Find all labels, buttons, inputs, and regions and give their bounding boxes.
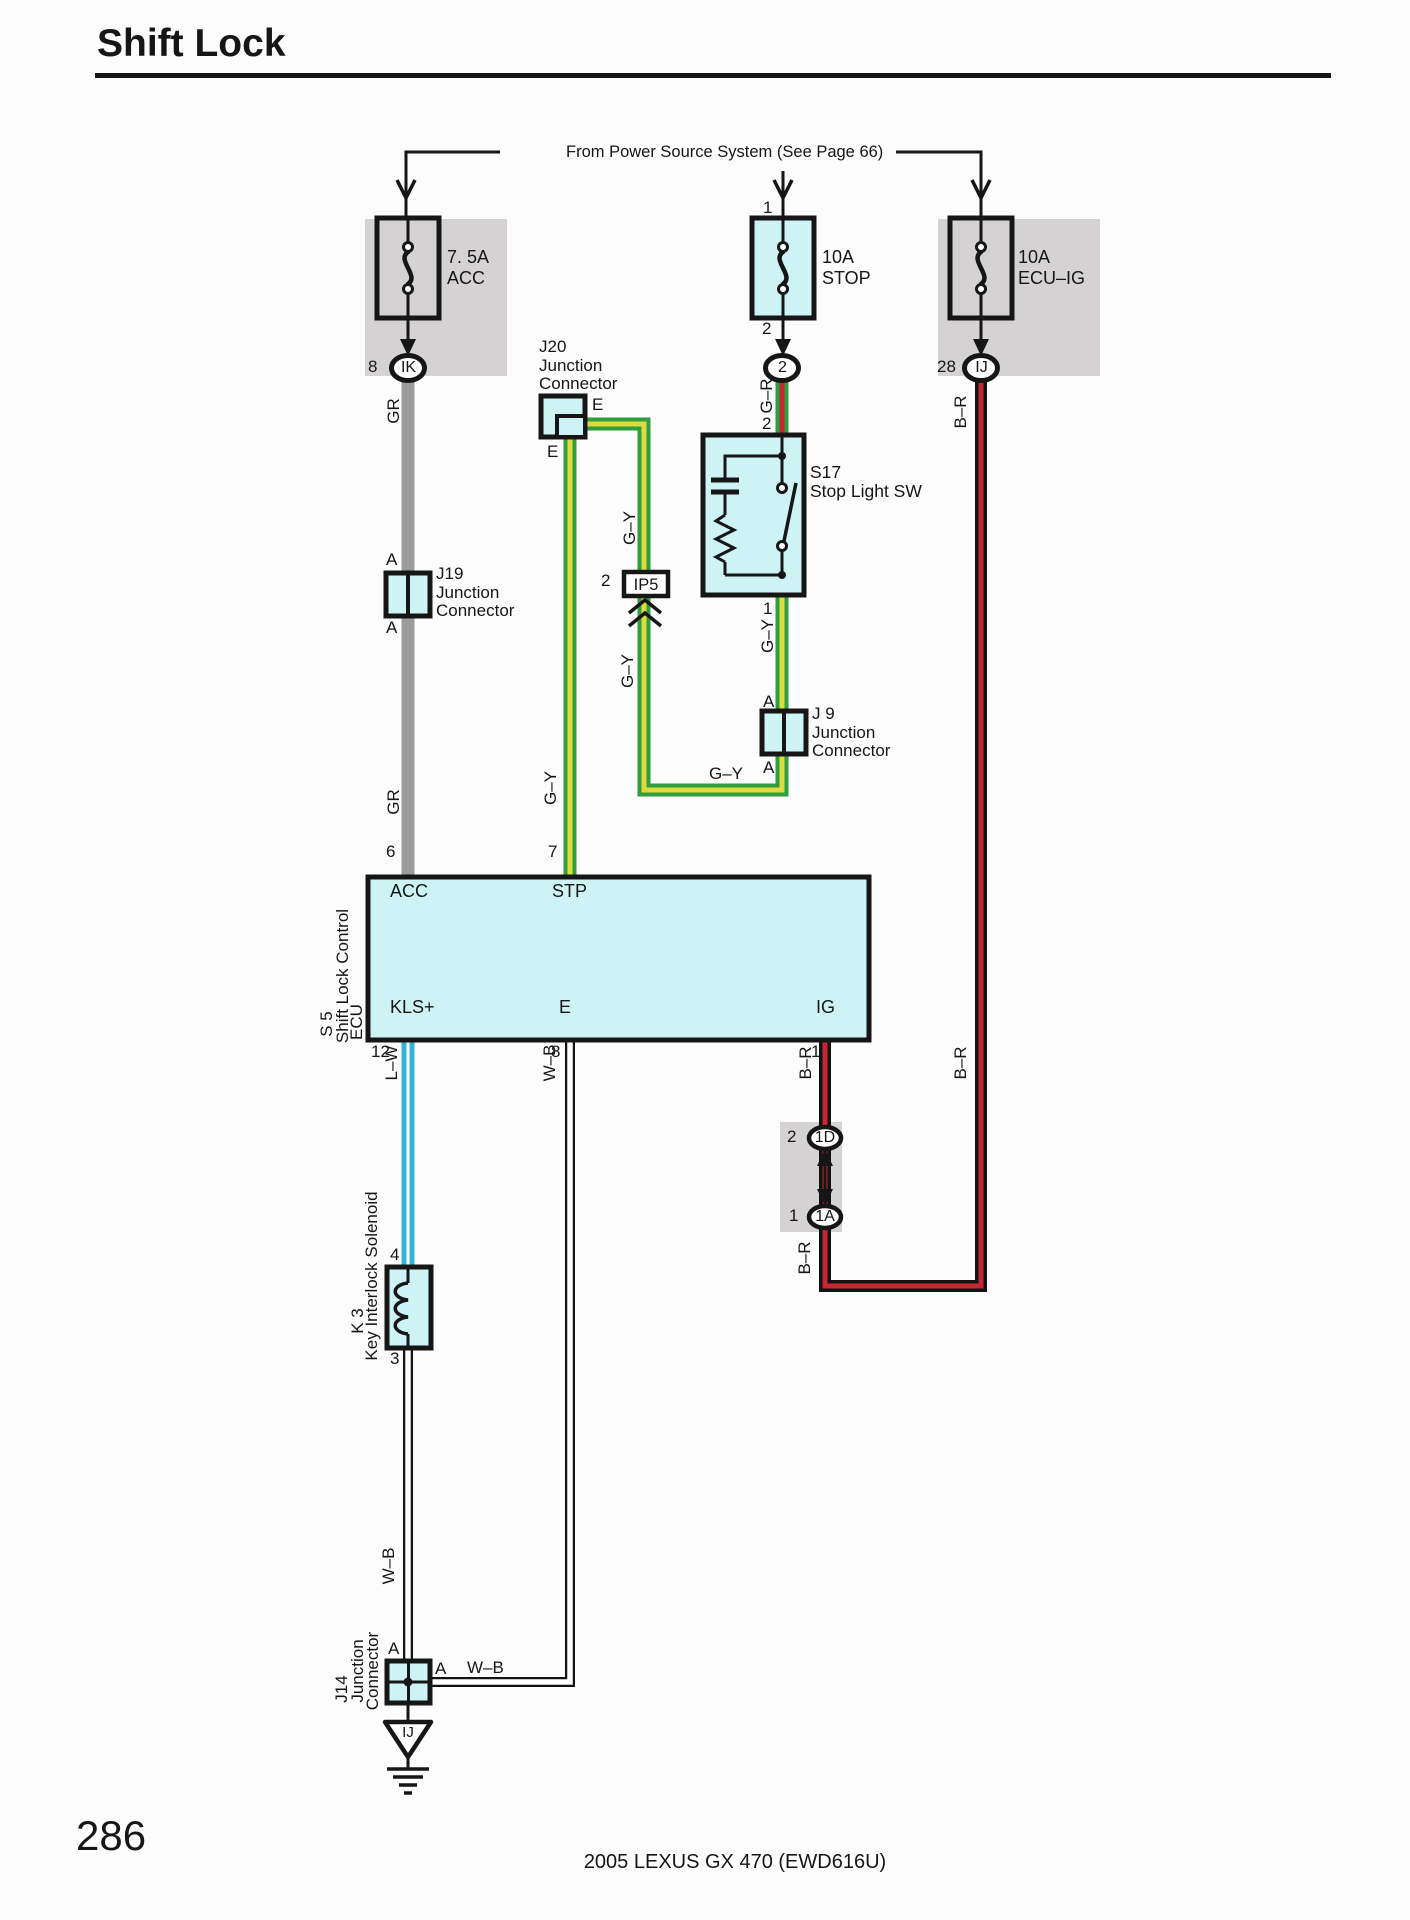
pin-letter: A	[763, 759, 774, 778]
ecu-pin-e: E	[559, 997, 571, 1018]
switch-contact-icon	[778, 542, 787, 551]
pin-number: 28	[937, 358, 956, 377]
wire-label-g-y: G–Y	[709, 765, 743, 784]
wire-b-r	[825, 379, 981, 1286]
fuse-name: ACC	[447, 268, 489, 289]
junction-id: J20	[539, 338, 617, 357]
ecu-pin-kls: KLS+	[390, 997, 435, 1018]
wire-w-b-e	[428, 1040, 570, 1682]
pin-number: 6	[386, 843, 395, 862]
j20-label: J20 Junction Connector	[539, 338, 617, 394]
connector-code: IP5	[624, 577, 668, 594]
wiring-diagram	[0, 0, 1410, 1920]
fuse-name: STOP	[822, 268, 871, 289]
fuse-rating: 7. 5A	[447, 247, 489, 268]
wire-label-w-b: W–B	[467, 1659, 504, 1678]
ground-symbol	[385, 1703, 431, 1793]
pin-letter: A	[763, 693, 774, 712]
fuse-rating: 10A	[822, 247, 871, 268]
fuse-stop-symbol	[752, 218, 814, 381]
fuse-ecuig-label: 10A ECU–IG	[1018, 247, 1085, 289]
pin-number: 7	[548, 843, 557, 862]
k3-key-interlock-solenoid	[387, 1267, 431, 1348]
fuse-name: ECU–IG	[1018, 268, 1085, 289]
pin-number: 4	[390, 1246, 399, 1265]
pin-number: 2	[762, 415, 771, 434]
ecu-pin-acc: ACC	[390, 881, 428, 902]
pin-letter: E	[592, 396, 603, 415]
component-id: S17	[810, 463, 922, 482]
j9-label: J 9 Junction Connector	[812, 705, 890, 761]
s5-shift-lock-ecu-box	[368, 877, 869, 1040]
j19-label: J19 Junction Connector	[436, 565, 514, 621]
pin-letter: A	[388, 1640, 399, 1659]
pin-letter: E	[547, 443, 558, 462]
page-number: 286	[76, 1812, 146, 1860]
pin-letter: A	[435, 1660, 446, 1679]
fuse-acc-label: 7. 5A ACC	[447, 247, 489, 289]
title-underline	[95, 73, 1331, 78]
fuse-rating: 10A	[1018, 247, 1085, 268]
pin-number: 2	[601, 572, 610, 591]
feed-line-acc	[406, 152, 500, 225]
pin-number: 2	[762, 320, 771, 339]
pin-number: 1	[763, 199, 772, 218]
junction-id: J19	[436, 565, 514, 584]
pin-number: 8	[368, 358, 377, 377]
pin-letter: A	[386, 619, 397, 638]
ecu-pin-stp: STP	[552, 881, 587, 902]
j20-junction-connector	[541, 396, 585, 437]
page-title: Shift Lock	[97, 22, 286, 66]
wiring-diagram-page: Shift Lock From Power Source System (See…	[0, 0, 1410, 1920]
feed-line-ecuig	[896, 152, 981, 225]
pin-number: 3	[390, 1350, 399, 1369]
s17-stop-light-switch	[703, 435, 804, 595]
footer-text: 2005 LEXUS GX 470 (EWD616U)	[455, 1851, 1015, 1874]
connector-code: 1D	[809, 1130, 841, 1146]
fuse-stop-label: 10A STOP	[822, 247, 871, 289]
pin-number: 1	[763, 600, 772, 619]
switch-contact-icon	[778, 484, 787, 493]
j19-junction-connector	[386, 573, 430, 616]
connector-code: IK	[392, 360, 425, 376]
pin-number: 2	[787, 1128, 796, 1147]
ecu-pin-ig: IG	[816, 997, 835, 1018]
ground-code: IJ	[394, 1725, 422, 1740]
connector-code: 1A	[809, 1209, 841, 1225]
power-source-note: From Power Source System (See Page 66)	[566, 143, 883, 161]
j9-junction-connector	[762, 711, 806, 754]
pin-number: 1	[789, 1207, 798, 1226]
pin-letter: A	[386, 551, 397, 570]
connector-code: IJ	[965, 360, 998, 376]
junction-id: J 9	[812, 705, 890, 724]
connector-code: 2	[766, 360, 799, 376]
s17-label: S17 Stop Light SW	[810, 463, 922, 501]
j14-junction-connector	[387, 1661, 430, 1703]
